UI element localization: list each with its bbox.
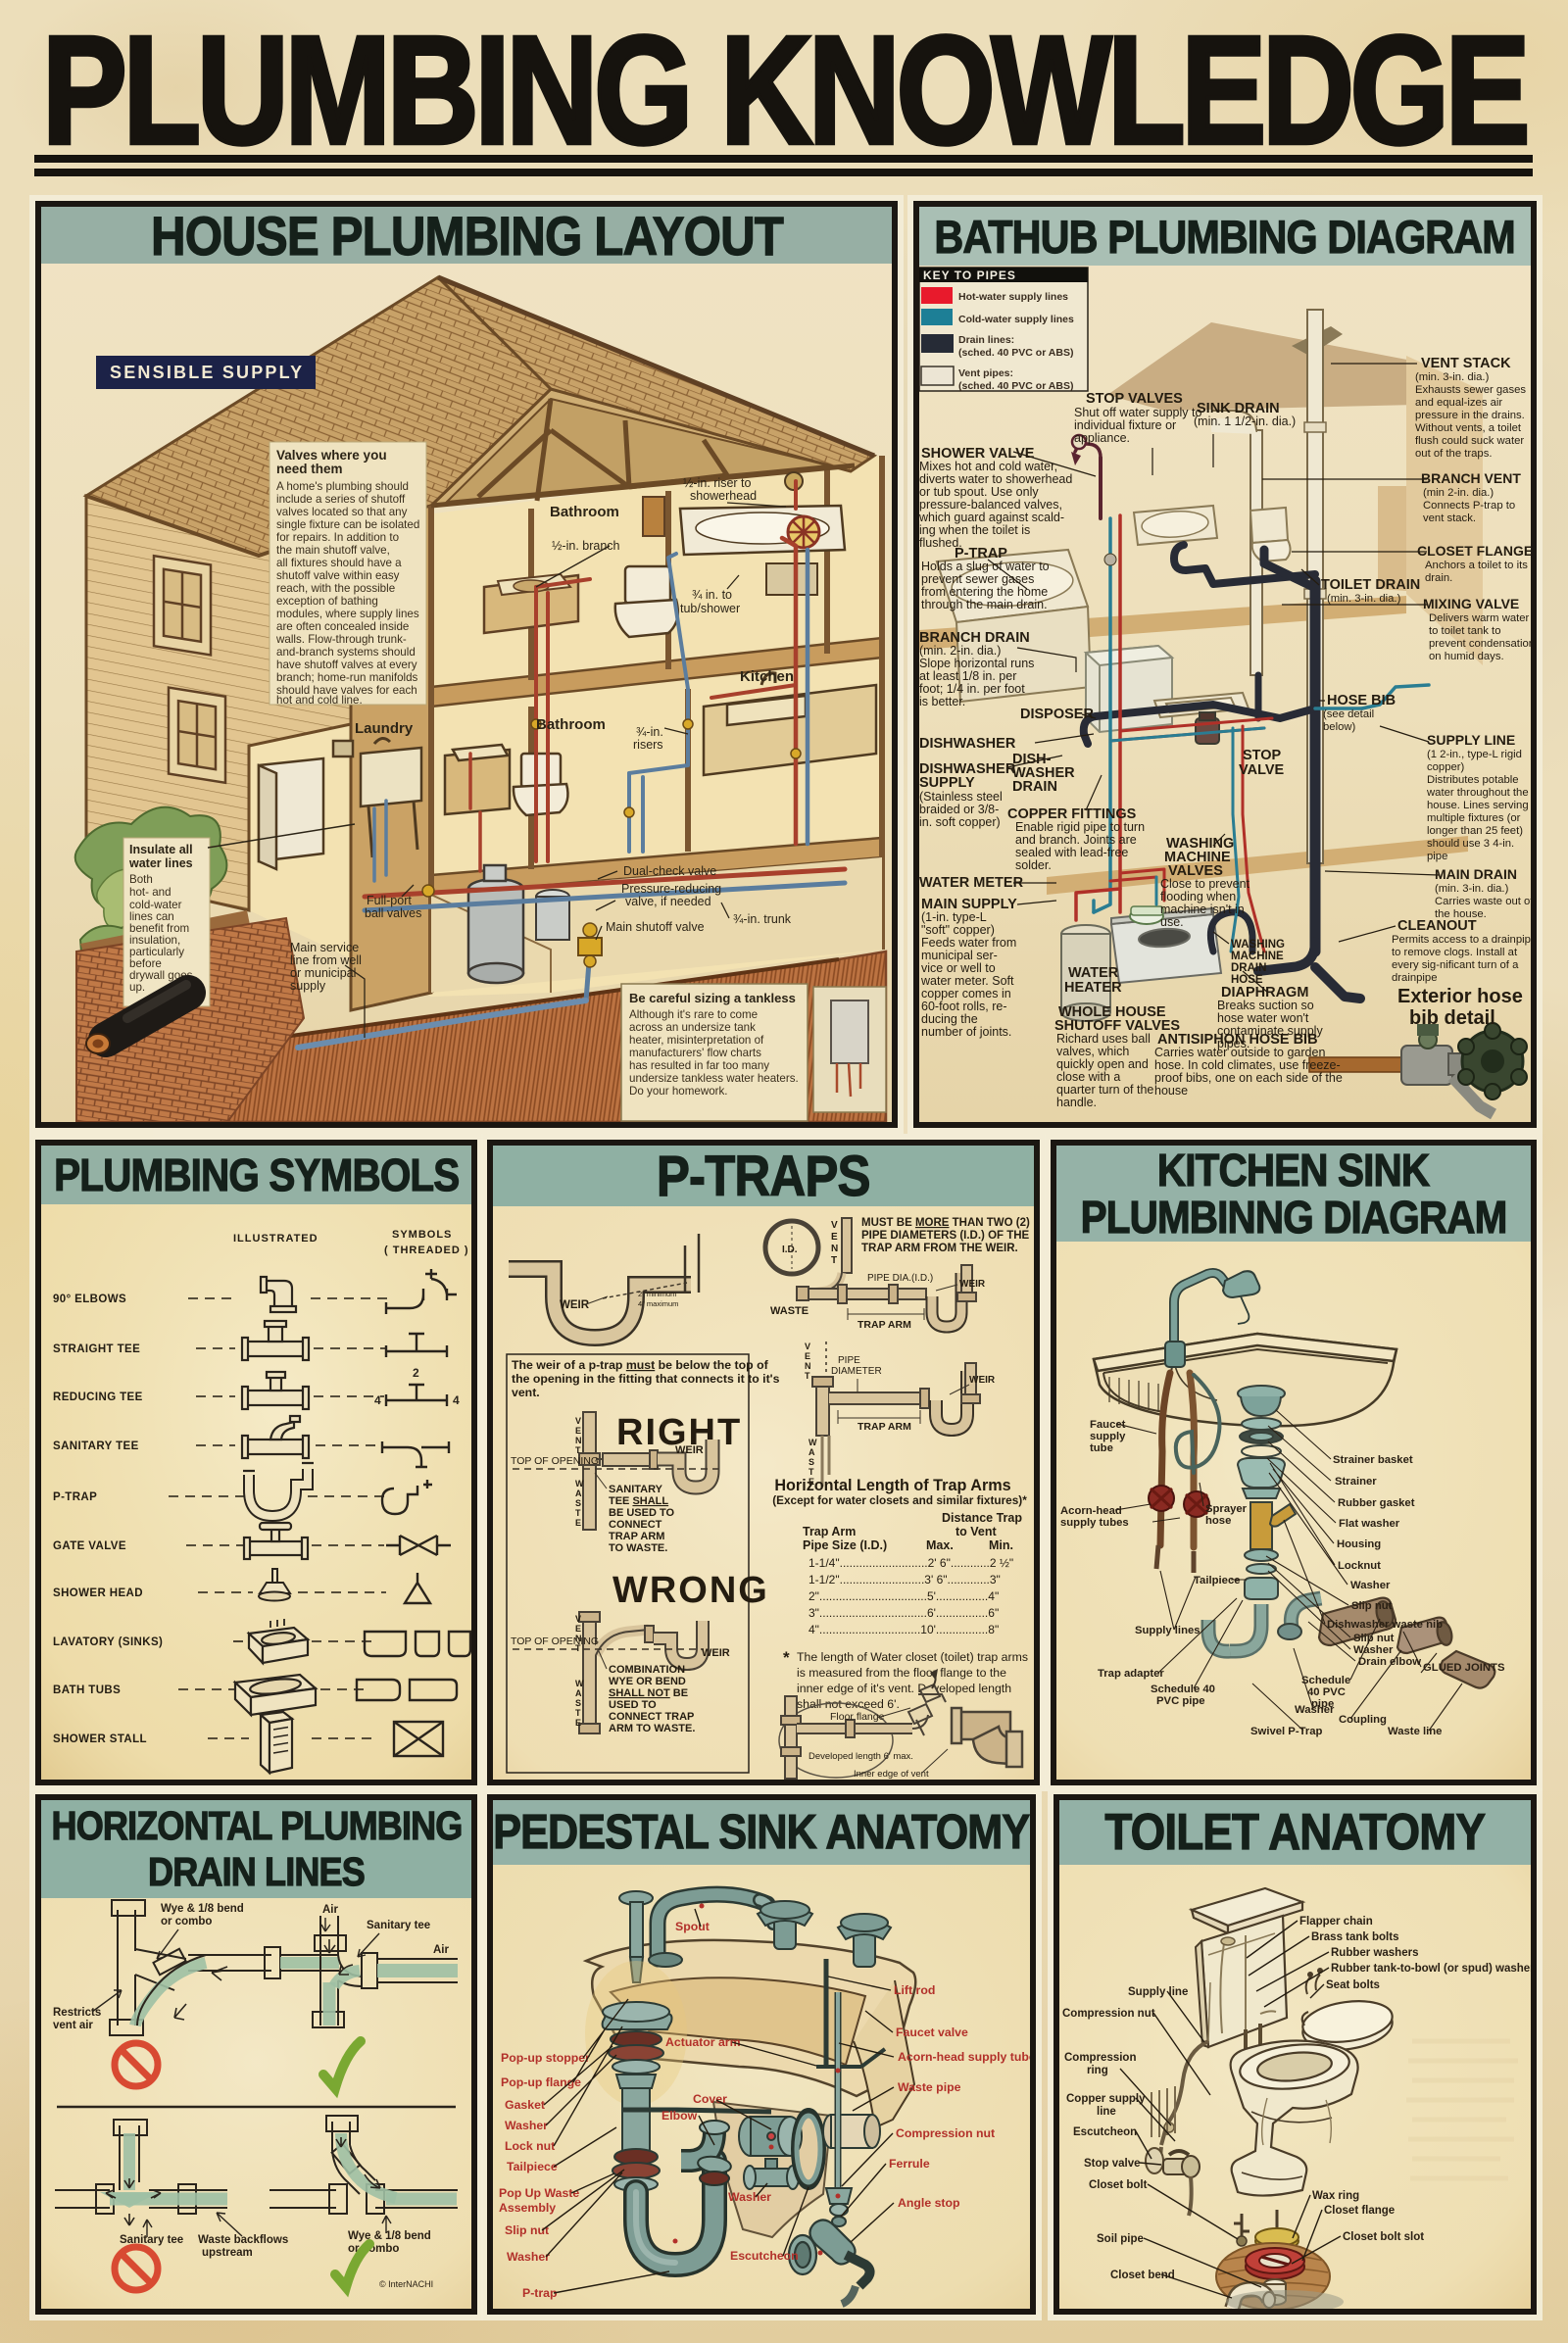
- svg-text:Pipe Size (I.D.): Pipe Size (I.D.): [803, 1538, 887, 1552]
- svg-text:V: V: [805, 1342, 810, 1351]
- svg-text:LAVATORY (SINKS): LAVATORY (SINKS): [53, 1636, 163, 1648]
- svg-text:Swivel P-Trap: Swivel P-Trap: [1250, 1726, 1323, 1737]
- svg-text:T: T: [575, 1708, 581, 1718]
- svg-text:N: N: [805, 1361, 811, 1371]
- svg-text:Washer: Washer: [1295, 1704, 1335, 1716]
- svg-text:Be careful sizing a tankless: Be careful sizing a tankless: [629, 991, 796, 1005]
- svg-text:DRAIN: DRAIN: [1231, 962, 1266, 974]
- svg-text:the opening in the fitting tha: the opening in the fitting that connects…: [512, 1372, 780, 1386]
- svg-text:Carries waste out of: Carries waste out of: [1435, 896, 1531, 907]
- svg-text:Rubber tank-to-bowl (or spud): Rubber tank-to-bowl (or spud) washer: [1331, 1963, 1531, 1975]
- svg-text:and-branch systems should: and-branch systems should: [276, 646, 416, 659]
- svg-text:¾-in.: ¾-in.: [636, 725, 663, 739]
- svg-text:Dual-check valve: Dual-check valve: [623, 864, 716, 878]
- svg-text:T: T: [575, 1445, 581, 1455]
- svg-text:to remove clogs. Install at: to remove clogs. Install at: [1392, 947, 1518, 958]
- svg-text:4" maximum: 4" maximum: [638, 1299, 678, 1308]
- svg-text:Do your homework.: Do your homework.: [629, 1085, 728, 1098]
- svg-text:Exhausts sewer gases: Exhausts sewer gases: [1415, 384, 1526, 396]
- svg-text:Ferrule: Ferrule: [889, 2157, 930, 2171]
- svg-text:flush could suck water: flush could suck water: [1415, 435, 1524, 447]
- svg-text:prevent condensation: prevent condensation: [1429, 638, 1531, 650]
- svg-text:SUPPLY LINE: SUPPLY LINE: [1427, 732, 1515, 748]
- svg-text:WEIR: WEIR: [702, 1647, 730, 1659]
- svg-text:BE USED TO: BE USED TO: [609, 1507, 674, 1519]
- svg-text:MUST BE MORE THAN TWO (2): MUST BE MORE THAN TWO (2): [861, 1217, 1030, 1229]
- svg-text:Supply lines: Supply lines: [1135, 1625, 1200, 1636]
- svg-text:PIPE: PIPE: [838, 1355, 860, 1366]
- svg-text:(min 2-in. dia.): (min 2-in. dia.): [1423, 487, 1494, 499]
- svg-text:drainpipe: drainpipe: [1392, 972, 1437, 984]
- svg-text:supply: supply: [1090, 1431, 1126, 1442]
- svg-text:is measured from the floor fla: is measured from the floor flange to the: [797, 1666, 1006, 1680]
- svg-text:ducing the: ducing the: [921, 1012, 978, 1026]
- svg-text:water throughout the: water throughout the: [1426, 787, 1529, 799]
- svg-text:"soft" copper): "soft" copper): [921, 923, 995, 937]
- svg-text:sealed with lead-free: sealed with lead-free: [1015, 846, 1128, 859]
- svg-text:W: W: [575, 1479, 584, 1489]
- svg-text:SUPPLY: SUPPLY: [919, 775, 975, 791]
- svg-text:S: S: [808, 1457, 814, 1467]
- svg-text:SANITARY TEE: SANITARY TEE: [53, 1440, 139, 1452]
- svg-text:valve, if needed: valve, if needed: [625, 895, 711, 908]
- svg-text:Acorn-head: Acorn-head: [1060, 1505, 1122, 1517]
- svg-text:N: N: [575, 1634, 582, 1643]
- svg-text:© InterNACHI: © InterNACHI: [379, 2279, 433, 2289]
- svg-text:Cold-water supply lines: Cold-water supply lines: [958, 314, 1074, 325]
- svg-text:Washer: Washer: [505, 2119, 548, 2132]
- svg-text:Lift rod: Lift rod: [894, 1983, 935, 1997]
- svg-text:across an undersize tank: across an undersize tank: [629, 1021, 756, 1034]
- svg-text:*: *: [783, 1648, 790, 1667]
- svg-text:Richard uses ball: Richard uses ball: [1056, 1032, 1151, 1046]
- svg-text:Permits access to a drainpipe: Permits access to a drainpipe: [1392, 934, 1531, 946]
- svg-text:Distance Trap: Distance Trap: [942, 1511, 1022, 1525]
- svg-text:Brass tank bolts: Brass tank bolts: [1311, 1931, 1398, 1943]
- svg-text:N: N: [831, 1244, 838, 1254]
- svg-text:40 PVC: 40 PVC: [1307, 1686, 1346, 1698]
- svg-text:pressure in the drains.: pressure in the drains.: [1415, 410, 1525, 421]
- svg-text:Drain lines:: Drain lines:: [958, 334, 1014, 346]
- svg-text:Waste backflows: Waste backflows: [198, 2234, 288, 2246]
- svg-text:for repairs. In addition to: for repairs. In addition to: [276, 531, 399, 544]
- svg-text:Tailpiece: Tailpiece: [1194, 1575, 1241, 1586]
- svg-text:the main shutoff valve,: the main shutoff valve,: [276, 544, 390, 557]
- svg-text:Shut off water supply to: Shut off water supply to: [1074, 406, 1201, 419]
- svg-text:Wye & 1/8 bend: Wye & 1/8 bend: [348, 2230, 431, 2242]
- svg-text:shutoff valve within easy: shutoff valve within easy: [276, 569, 400, 582]
- svg-text:4: 4: [374, 1393, 381, 1407]
- svg-text:Closet bolt slot: Closet bolt slot: [1343, 2231, 1424, 2243]
- svg-text:Max.: Max.: [926, 1538, 954, 1552]
- svg-text:hose: hose: [1205, 1515, 1231, 1527]
- svg-text:all fixtures should have a: all fixtures should have a: [276, 557, 402, 569]
- svg-text:hose water won't: hose water won't: [1217, 1011, 1309, 1025]
- svg-text:Angle stop: Angle stop: [898, 2196, 960, 2210]
- svg-text:quickly open and: quickly open and: [1056, 1057, 1149, 1071]
- svg-text:Connects P-trap to: Connects P-trap to: [1423, 500, 1515, 512]
- svg-text:solder.: solder.: [1015, 858, 1052, 872]
- svg-text:WASTE: WASTE: [770, 1305, 808, 1317]
- svg-text:Hot-water supply lines: Hot-water supply lines: [958, 291, 1068, 303]
- svg-text:ARM TO WASTE.: ARM TO WASTE.: [609, 1723, 695, 1734]
- svg-text:CONNECT TRAP: CONNECT TRAP: [609, 1711, 694, 1723]
- svg-text:CLOSET FLANGE: CLOSET FLANGE: [1417, 543, 1531, 559]
- svg-text:Washer: Washer: [728, 2190, 771, 2204]
- svg-text:N: N: [575, 1436, 582, 1445]
- svg-text:Wax ring: Wax ring: [1312, 2190, 1359, 2202]
- svg-text:have shutoff valves at every: have shutoff valves at every: [276, 659, 417, 671]
- svg-text:A: A: [808, 1447, 815, 1457]
- svg-text:Holds a slug of water to: Holds a slug of water to: [921, 560, 1050, 573]
- svg-text:Sprayer: Sprayer: [1205, 1503, 1248, 1515]
- svg-text:include a series of shutoff: include a series of shutoff: [276, 493, 406, 506]
- svg-text:Assembly: Assembly: [499, 2201, 556, 2215]
- svg-text:Vent pipes:: Vent pipes:: [958, 367, 1013, 379]
- svg-text:TOP OF OPENING: TOP OF OPENING: [511, 1635, 599, 1647]
- svg-text:MACHINE: MACHINE: [1231, 951, 1284, 962]
- svg-text:¾ in. to: ¾ in. to: [692, 588, 732, 602]
- svg-text:Laundry: Laundry: [355, 720, 414, 737]
- svg-text:Compression: Compression: [1064, 2052, 1137, 2064]
- svg-text:Distributes potable: Distributes potable: [1427, 774, 1519, 786]
- svg-text:Bathroom: Bathroom: [550, 504, 619, 520]
- svg-text:flooding when: flooding when: [1160, 890, 1236, 903]
- svg-text:vent air: vent air: [53, 2020, 93, 2031]
- svg-text:Gasket: Gasket: [505, 2098, 545, 2112]
- svg-text:are often concealed inside: are often concealed inside: [276, 620, 409, 633]
- svg-text:STOP VALVES: STOP VALVES: [1086, 391, 1183, 407]
- svg-text:(Except for water closets and: (Except for water closets and similar fi…: [772, 1493, 1027, 1507]
- svg-text:pipe: pipe: [1427, 851, 1447, 862]
- svg-text:pressure-balanced valves,: pressure-balanced valves,: [919, 498, 1062, 512]
- svg-text:individual fixture or: individual fixture or: [1074, 418, 1176, 432]
- svg-text:T: T: [575, 1643, 581, 1653]
- svg-text:DRAIN: DRAIN: [1012, 779, 1057, 795]
- svg-text:Restricts: Restricts: [53, 2007, 101, 2019]
- svg-text:T: T: [805, 1371, 810, 1381]
- svg-text:T: T: [575, 1508, 581, 1518]
- svg-text:exception of bathing: exception of bathing: [276, 595, 378, 608]
- svg-text:multiple fixtures (or: multiple fixtures (or: [1427, 812, 1521, 824]
- svg-text:Coupling: Coupling: [1339, 1714, 1387, 1726]
- svg-text:Acorn-head supply tube: Acorn-head supply tube: [898, 2050, 1030, 2064]
- svg-text:pipes.: pipes.: [1217, 1037, 1249, 1050]
- svg-text:need them: need them: [276, 462, 343, 476]
- svg-text:Main service: Main service: [290, 941, 359, 954]
- svg-text:Insulate all: Insulate all: [129, 843, 193, 856]
- svg-text:proof bibs, one on each side o: proof bibs, one on each side of the: [1154, 1071, 1343, 1085]
- svg-text:water meter. Soft: water meter. Soft: [920, 974, 1014, 988]
- svg-text:WEIR: WEIR: [969, 1375, 996, 1386]
- svg-text:S: S: [575, 1698, 581, 1708]
- svg-text:house. Lines serving: house. Lines serving: [1427, 800, 1529, 811]
- svg-text:diverts water to showerhead: diverts water to showerhead: [919, 472, 1072, 486]
- svg-text:Wye & 1/8 bend: Wye & 1/8 bend: [161, 1903, 244, 1915]
- svg-text:Anchors a toilet to its: Anchors a toilet to its: [1425, 560, 1528, 571]
- svg-text:SHOWER STALL: SHOWER STALL: [53, 1733, 147, 1745]
- svg-text:E: E: [575, 1426, 581, 1436]
- svg-text:reach, with the possible: reach, with the possible: [276, 582, 395, 595]
- svg-text:Both: Both: [129, 873, 153, 886]
- svg-text:undersize tankless water heate: undersize tankless water heaters.: [629, 1072, 799, 1085]
- svg-text:Bathroom: Bathroom: [536, 716, 606, 733]
- svg-text:prevent sewer gases: prevent sewer gases: [921, 572, 1034, 586]
- svg-text:PIPE DIAMETERS (I.D.) OF THE: PIPE DIAMETERS (I.D.) OF THE: [861, 1230, 1030, 1242]
- svg-text:foot; 1/4 in. per foot: foot; 1/4 in. per foot: [919, 682, 1025, 696]
- svg-text:use.: use.: [1160, 915, 1184, 929]
- svg-text:S: S: [575, 1498, 581, 1508]
- svg-text:Waste line: Waste line: [1388, 1726, 1442, 1737]
- svg-text:Flapper chain: Flapper chain: [1299, 1916, 1373, 1928]
- svg-text:P-TRAP: P-TRAP: [53, 1491, 97, 1503]
- svg-text:Actuator arm: Actuator arm: [665, 2035, 741, 2049]
- svg-text:Strainer basket: Strainer basket: [1333, 1454, 1413, 1466]
- svg-text:Closet bolt: Closet bolt: [1089, 2179, 1148, 2191]
- svg-text:90° ELBOWS: 90° ELBOWS: [53, 1294, 126, 1305]
- svg-text:Elbow: Elbow: [661, 2109, 698, 2123]
- svg-text:4: 4: [453, 1393, 460, 1407]
- svg-text:vice or well to: vice or well to: [921, 961, 996, 975]
- svg-text:below): below): [1323, 721, 1356, 733]
- svg-text:Pop Up Waste: Pop Up Waste: [499, 2186, 579, 2200]
- svg-text:WEIR: WEIR: [560, 1299, 590, 1311]
- svg-text:E: E: [831, 1232, 838, 1243]
- svg-text:heater, misinterpretation of: heater, misinterpretation of: [629, 1034, 764, 1047]
- svg-text:single fixture can be isolated: single fixture can be isolated: [276, 518, 419, 531]
- svg-text:Delivers warm water: Delivers warm water: [1429, 612, 1530, 624]
- svg-text:Compression nut: Compression nut: [1062, 2008, 1155, 2020]
- svg-text:4"............................: 4"...............................10'....…: [808, 1623, 999, 1636]
- svg-text:hose. In cold climates, use fr: hose. In cold climates, use freeze-: [1154, 1058, 1341, 1072]
- svg-text:Sanitary tee: Sanitary tee: [120, 2234, 183, 2246]
- svg-text:longer than 25 feet): longer than 25 feet): [1427, 825, 1523, 837]
- svg-text:Supply line: Supply line: [1128, 1986, 1188, 1998]
- svg-text:KEY TO PIPES: KEY TO PIPES: [923, 268, 1016, 282]
- svg-text:HOSE BIB: HOSE BIB: [1327, 693, 1396, 708]
- svg-text:SANITARY: SANITARY: [609, 1484, 663, 1495]
- svg-text:Faucet valve: Faucet valve: [896, 2026, 968, 2039]
- svg-text:V: V: [575, 1416, 581, 1426]
- svg-text:Air: Air: [433, 1944, 450, 1956]
- svg-text:has resulted in far too many: has resulted in far too many: [629, 1059, 769, 1072]
- svg-text:2"............................: 2".................................5'...…: [808, 1589, 999, 1603]
- svg-text:is better.: is better.: [919, 695, 965, 708]
- svg-text:SHALL NOT BE: SHALL NOT BE: [609, 1687, 688, 1699]
- svg-text:through the main drain.: through the main drain.: [921, 598, 1048, 611]
- svg-text:V: V: [575, 1614, 581, 1624]
- svg-text:STRAIGHT TEE: STRAIGHT TEE: [53, 1343, 140, 1355]
- svg-text:TRAP ARM: TRAP ARM: [857, 1421, 911, 1433]
- svg-text:(min. 3-in. dia.): (min. 3-in. dia.): [1415, 371, 1490, 383]
- svg-text:contaminate supply: contaminate supply: [1217, 1024, 1323, 1038]
- svg-text:drain.: drain.: [1425, 572, 1452, 584]
- svg-text:braided or 3/8-: braided or 3/8-: [919, 803, 999, 816]
- svg-text:E: E: [575, 1624, 581, 1634]
- svg-text:T: T: [831, 1255, 837, 1266]
- svg-text:at least 1/8 in. per: at least 1/8 in. per: [919, 669, 1016, 683]
- svg-text:¾-in. trunk: ¾-in. trunk: [733, 912, 792, 926]
- svg-text:out of the traps.: out of the traps.: [1415, 448, 1493, 460]
- svg-text:Strainer: Strainer: [1335, 1476, 1377, 1488]
- svg-text:A: A: [575, 1489, 582, 1498]
- svg-text:inner edge of it's vent. Dev: inner edge of it's vent. Developed lengt…: [797, 1682, 1011, 1695]
- svg-text:on humid days.: on humid days.: [1429, 651, 1504, 662]
- svg-text:WATER: WATER: [1068, 965, 1119, 981]
- svg-text:Rubber gasket: Rubber gasket: [1338, 1497, 1415, 1509]
- svg-text:hot and cold line.: hot and cold line.: [276, 694, 363, 707]
- svg-text:handle.: handle.: [1056, 1096, 1097, 1109]
- svg-text:½-in. riser to: ½-in. riser to: [683, 476, 752, 490]
- svg-text:TEE SHALL: TEE SHALL: [609, 1495, 668, 1507]
- svg-text:Washer: Washer: [1350, 1580, 1391, 1591]
- svg-text:Slip nut: Slip nut: [1351, 1600, 1393, 1612]
- svg-text:Escutcheon: Escutcheon: [730, 2249, 799, 2263]
- svg-text:COMBINATION: COMBINATION: [609, 1664, 685, 1676]
- svg-text:Inner edge of vent: Inner edge of vent: [854, 1769, 929, 1780]
- svg-text:house: house: [1154, 1084, 1188, 1098]
- svg-text:water lines: water lines: [128, 856, 193, 870]
- svg-text:MAIN DRAIN: MAIN DRAIN: [1435, 866, 1517, 882]
- svg-text:to toilet tank to: to toilet tank to: [1429, 625, 1500, 637]
- svg-text:WEIR: WEIR: [675, 1444, 704, 1456]
- svg-text:V: V: [831, 1220, 838, 1231]
- svg-text:Locknut: Locknut: [1338, 1560, 1381, 1572]
- svg-text:Pressure-reducing: Pressure-reducing: [621, 882, 721, 896]
- svg-text:Feeds water from: Feeds water from: [921, 936, 1016, 950]
- svg-text:Soil pipe: Soil pipe: [1097, 2233, 1144, 2245]
- svg-text:Main shutoff valve: Main shutoff valve: [606, 920, 705, 934]
- svg-text:E: E: [575, 1518, 581, 1528]
- svg-text:Flat washer: Flat washer: [1339, 1518, 1400, 1530]
- svg-text:supply tubes: supply tubes: [1060, 1517, 1129, 1529]
- svg-text:SENSIBLE SUPPLY: SENSIBLE SUPPLY: [110, 363, 304, 382]
- svg-text:SHOWER HEAD: SHOWER HEAD: [53, 1587, 143, 1599]
- svg-text:(min. 3-in. dia.): (min. 3-in. dia.): [1327, 593, 1401, 605]
- svg-text:Without vents, a toilet: Without vents, a toilet: [1415, 422, 1522, 434]
- svg-text:I.D.: I.D.: [782, 1245, 798, 1255]
- svg-text:Washer: Washer: [1353, 1644, 1394, 1656]
- svg-text:DIAMETER: DIAMETER: [831, 1366, 882, 1377]
- svg-text:Compression nut: Compression nut: [896, 2126, 995, 2140]
- svg-text:Valves where you: Valves where you: [276, 448, 387, 463]
- svg-text:municipal ser-: municipal ser-: [921, 949, 998, 962]
- svg-text:Horizontal Length of Trap Arms: Horizontal Length of Trap Arms: [774, 1477, 1010, 1494]
- svg-text:Trap adapter: Trap adapter: [1098, 1668, 1164, 1680]
- svg-text:branch; home-run manifolds: branch; home-run manifolds: [276, 671, 418, 684]
- svg-text:or tub spout. Use only: or tub spout. Use only: [919, 485, 1039, 499]
- svg-text:HEATER: HEATER: [1064, 980, 1122, 996]
- svg-text:machine isn't in: machine isn't in: [1160, 903, 1245, 916]
- svg-text:Air: Air: [322, 1904, 339, 1916]
- svg-text:walls. Flow-through trunk-: walls. Flow-through trunk-: [275, 633, 407, 646]
- svg-text:Schedule 40: Schedule 40: [1151, 1684, 1215, 1695]
- svg-text:valves located so that any: valves located so that any: [276, 506, 408, 518]
- svg-text:Developed length 6' max.: Developed length 6' max.: [808, 1751, 913, 1762]
- svg-text:VALVE: VALVE: [1239, 762, 1285, 778]
- svg-text:The weir of a p-trap must be b: The weir of a p-trap must be below the t…: [512, 1358, 769, 1372]
- svg-text:MIXING VALVE: MIXING VALVE: [1423, 596, 1519, 611]
- svg-text:TRAP ARM: TRAP ARM: [857, 1319, 911, 1331]
- svg-text:TRAP ARM FROM THE WEIR.: TRAP ARM FROM THE WEIR.: [861, 1243, 1018, 1254]
- svg-text:Close to prevent: Close to prevent: [1160, 877, 1250, 891]
- svg-text:Sanitary tee: Sanitary tee: [367, 1920, 430, 1931]
- svg-text:2" minimum: 2" minimum: [638, 1290, 676, 1298]
- svg-text:(Stainless steel: (Stainless steel: [919, 790, 1003, 804]
- svg-text:manufacturers' flow charts: manufacturers' flow charts: [629, 1047, 761, 1059]
- svg-text:Rubber washers: Rubber washers: [1331, 1947, 1418, 1959]
- svg-text:Lock nut: Lock nut: [505, 2139, 555, 2153]
- svg-text:Pop-up stopper: Pop-up stopper: [501, 2051, 590, 2065]
- svg-text:tube: tube: [1090, 1442, 1113, 1454]
- svg-text:(see detail: (see detail: [1323, 708, 1374, 720]
- svg-text:Mixes hot and cold water,: Mixes hot and cold water,: [919, 460, 1057, 473]
- svg-text:up.: up.: [129, 981, 145, 994]
- svg-text:close with a: close with a: [1056, 1070, 1120, 1084]
- svg-text:should use 3 4-in.: should use 3 4-in.: [1427, 838, 1514, 850]
- svg-text:or municipal: or municipal: [290, 966, 356, 980]
- svg-text:PIPE DIA.(I.D.): PIPE DIA.(I.D.): [867, 1273, 933, 1284]
- svg-text:risers: risers: [633, 738, 663, 752]
- svg-text:Dishwasher waste nib: Dishwasher waste nib: [1327, 1619, 1443, 1631]
- svg-text:(1-in. type-L: (1-in. type-L: [921, 910, 987, 924]
- svg-text:WRONG: WRONG: [612, 1570, 769, 1611]
- svg-text:in. soft copper): in. soft copper): [919, 815, 1001, 829]
- svg-text:TO WASTE.: TO WASTE.: [609, 1542, 667, 1554]
- svg-text:( THREADED ): ( THREADED ): [384, 1245, 469, 1256]
- svg-text:hot- and: hot- and: [129, 886, 171, 899]
- svg-text:WEIR: WEIR: [959, 1279, 986, 1290]
- svg-text:and branch. Joints are: and branch. Joints are: [1015, 833, 1137, 847]
- svg-text:which guard against scald-: which guard against scald-: [919, 511, 1064, 524]
- svg-text:3"............................: 3".................................6'...…: [808, 1606, 999, 1620]
- svg-text:showerhead: showerhead: [690, 489, 757, 503]
- svg-text:vent stack.: vent stack.: [1423, 513, 1476, 524]
- svg-text:W: W: [808, 1438, 817, 1447]
- svg-text:2: 2: [413, 1366, 419, 1380]
- svg-text:DISHWASHER: DISHWASHER: [919, 736, 1016, 752]
- svg-text:Tailpiece: Tailpiece: [507, 2160, 558, 2173]
- svg-text:copper comes in: copper comes in: [921, 987, 1011, 1001]
- svg-text:Spout: Spout: [675, 1920, 710, 1933]
- svg-text:REDUCING TEE: REDUCING TEE: [53, 1391, 143, 1403]
- svg-text:A: A: [575, 1688, 582, 1698]
- svg-text:tub/shower: tub/shower: [680, 602, 740, 615]
- svg-text:(min. 3-in. dia.): (min. 3-in. dia.): [1435, 883, 1509, 895]
- svg-text:Exterior hose: Exterior hose: [1397, 986, 1523, 1007]
- svg-text:The length of Water closet (to: The length of Water closet (toilet) trap…: [797, 1650, 1028, 1664]
- svg-text:(sched. 40 PVC or ABS): (sched. 40 PVC or ABS): [958, 380, 1073, 392]
- svg-text:quarter turn of the: quarter turn of the: [1056, 1083, 1153, 1097]
- svg-text:number of joints.: number of joints.: [921, 1025, 1011, 1039]
- svg-text:or combo: or combo: [161, 1916, 212, 1928]
- svg-text:WATER METER: WATER METER: [919, 875, 1024, 891]
- svg-text:Enable rigid pipe to turn: Enable rigid pipe to turn: [1015, 820, 1145, 834]
- svg-text:(min. 1 1/2-in. dia.): (min. 1 1/2-in. dia.): [1194, 415, 1296, 428]
- svg-text:Floor flange: Floor flange: [830, 1711, 885, 1723]
- svg-text:CLEANOUT: CLEANOUT: [1397, 918, 1477, 934]
- svg-text:ILLUSTRATED: ILLUSTRATED: [233, 1233, 318, 1245]
- svg-text:SYMBOLS: SYMBOLS: [392, 1229, 452, 1241]
- svg-text:TRAP ARM: TRAP ARM: [609, 1531, 664, 1542]
- svg-text:E: E: [805, 1351, 810, 1361]
- svg-text:from entering the home: from entering the home: [921, 585, 1048, 599]
- svg-text:USED TO: USED TO: [609, 1699, 657, 1711]
- svg-text:Kitchen: Kitchen: [740, 668, 794, 685]
- svg-text:STOP: STOP: [1243, 748, 1282, 763]
- svg-text:Schedule: Schedule: [1301, 1675, 1350, 1686]
- svg-text:and equal-izes air: and equal-izes air: [1415, 397, 1502, 409]
